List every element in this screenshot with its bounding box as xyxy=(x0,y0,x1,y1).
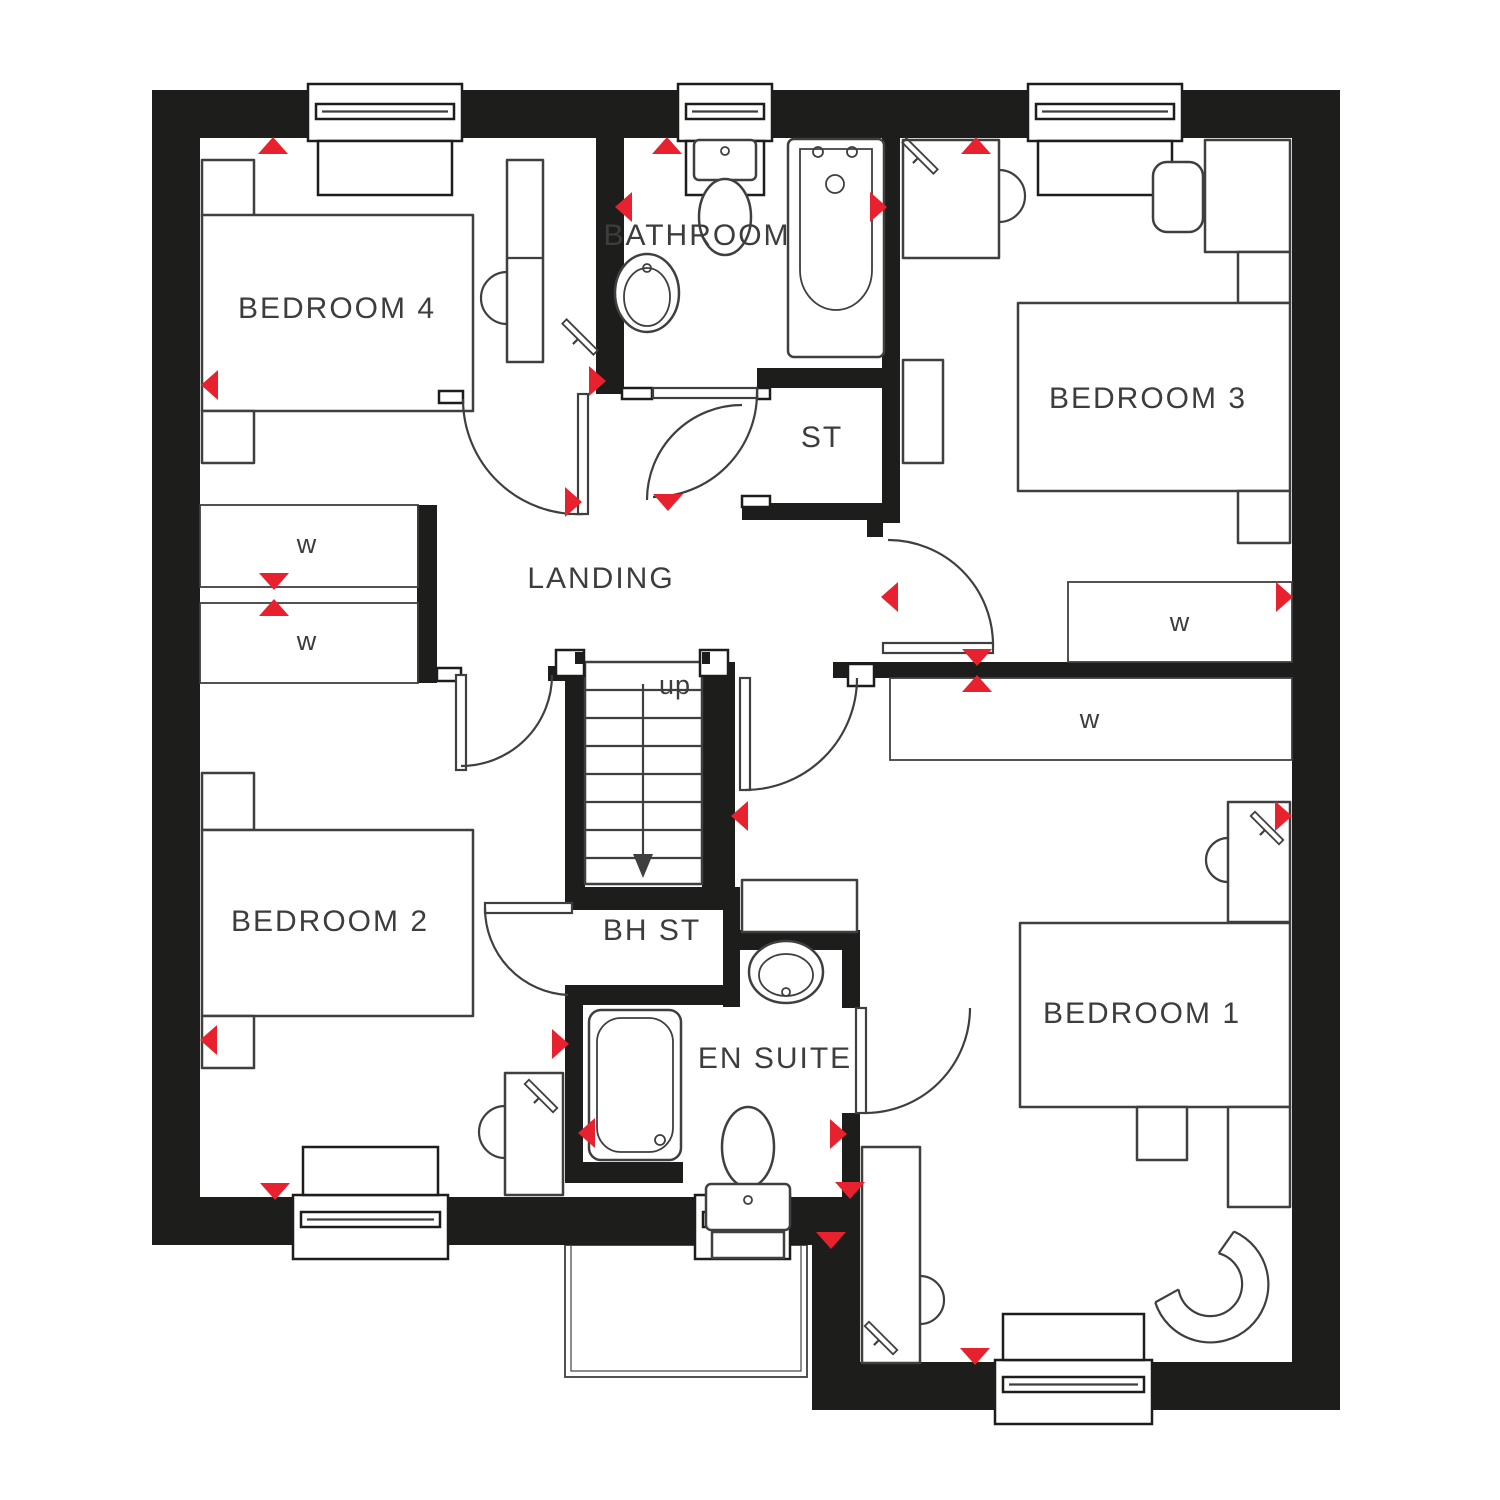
window-symbol xyxy=(995,1314,1152,1424)
shelf-symbol xyxy=(903,360,943,463)
door-leaf xyxy=(485,903,572,913)
shower-symbol xyxy=(589,1010,681,1160)
door-arc xyxy=(485,908,568,995)
wardrobe-label: w xyxy=(296,626,318,656)
lower-floor-footprint-outline xyxy=(565,1245,807,1377)
nightstand-symbol xyxy=(202,160,254,216)
nightstand-symbol xyxy=(1238,491,1290,543)
wardrobe-label: w xyxy=(296,529,318,559)
bulkhead-store-label: BH ST xyxy=(603,914,701,947)
basin-symbol xyxy=(615,254,679,332)
desk-symbol xyxy=(1205,140,1290,252)
direction-marker-icon xyxy=(653,494,683,511)
door-arc xyxy=(653,393,757,497)
door-leaf xyxy=(578,394,588,514)
bathroom-label: BATHROOM xyxy=(603,219,790,252)
floor-plan: BEDROOM 4 BATHROOM BEDROOM 3 ST LANDING … xyxy=(0,0,1500,1500)
landing-label: LANDING xyxy=(527,562,674,595)
door-leaf xyxy=(740,678,750,790)
wardrobe-label: w xyxy=(1079,704,1101,734)
nightstand-symbol xyxy=(202,411,254,463)
chair-symbol xyxy=(479,1106,505,1158)
direction-marker-icon xyxy=(1276,582,1293,612)
bath-symbol xyxy=(788,139,884,357)
door-leaf xyxy=(653,388,757,398)
direction-marker-icon xyxy=(258,137,288,154)
ensuite-label: EN SUITE xyxy=(698,1042,852,1075)
bedroom-3-label: BEDROOM 3 xyxy=(1049,382,1247,415)
storage-label: ST xyxy=(801,421,843,454)
door-arc xyxy=(461,675,552,766)
cupboard-symbol xyxy=(742,880,857,932)
chair-symbol xyxy=(1206,838,1228,882)
toilet-symbol xyxy=(706,1107,790,1258)
chair-symbol xyxy=(920,1276,944,1324)
direction-marker-icon xyxy=(259,599,289,616)
door-leaf xyxy=(456,675,466,770)
nightstand-symbol xyxy=(202,773,254,830)
direction-marker-icon xyxy=(835,1182,865,1199)
door-arc xyxy=(888,540,993,645)
chair-symbol xyxy=(481,272,507,324)
nightstand-symbol xyxy=(1137,1107,1187,1160)
mirror-symbol xyxy=(557,319,597,359)
door-arc xyxy=(865,1008,970,1113)
tub-chair-symbol xyxy=(1152,1228,1293,1366)
bedroom-2 xyxy=(200,603,563,1195)
window-symbol xyxy=(293,1147,448,1259)
nightstand-symbol xyxy=(1238,252,1290,303)
chair-symbol xyxy=(1153,162,1203,232)
bedroom-1-label: BEDROOM 1 xyxy=(1043,997,1241,1030)
desk-symbol xyxy=(507,160,543,362)
bedroom-4 xyxy=(200,160,598,587)
chair-symbol xyxy=(999,170,1025,222)
desk-symbol xyxy=(862,1147,920,1363)
desk-symbol xyxy=(505,1073,563,1195)
wardrobe-label: w xyxy=(1169,607,1191,637)
door-arc xyxy=(745,678,857,790)
floor-plan-page: BEDROOM 4 BATHROOM BEDROOM 3 ST LANDING … xyxy=(0,0,1500,1500)
direction-marker-icon xyxy=(881,582,898,612)
stairs-direction-label: up xyxy=(659,670,691,700)
door-arc xyxy=(647,405,742,500)
door-leaf xyxy=(856,1008,866,1113)
window-symbol xyxy=(308,84,462,195)
bedroom-4-label: BEDROOM 4 xyxy=(238,292,436,325)
nightstand-symbol xyxy=(1228,1107,1290,1207)
bedroom-2-label: BEDROOM 2 xyxy=(231,905,429,938)
basin-symbol xyxy=(749,941,823,1003)
